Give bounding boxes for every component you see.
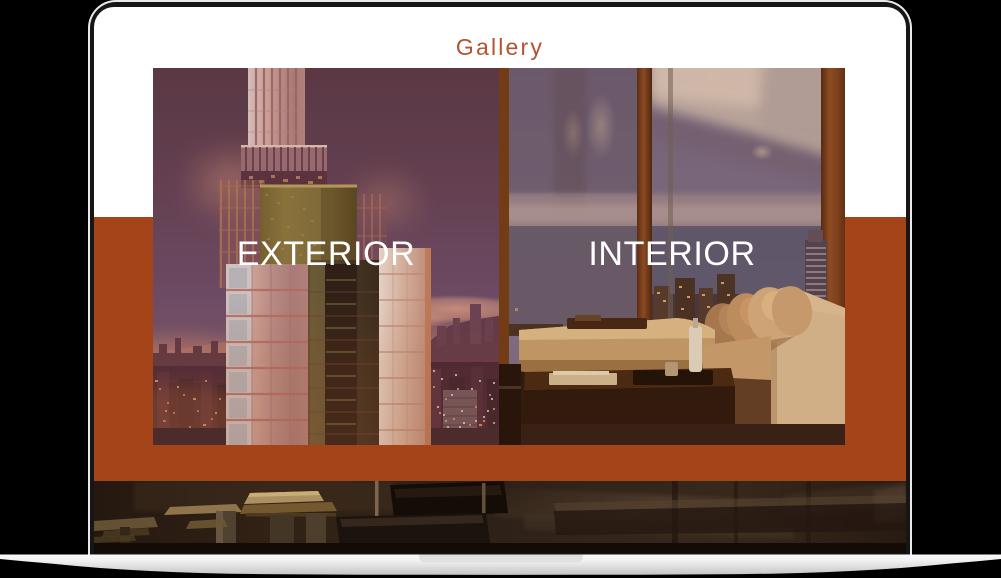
svg-text:EXTERIOR: EXTERIOR — [237, 235, 416, 273]
svg-text:INTERIOR: INTERIOR — [588, 235, 755, 273]
